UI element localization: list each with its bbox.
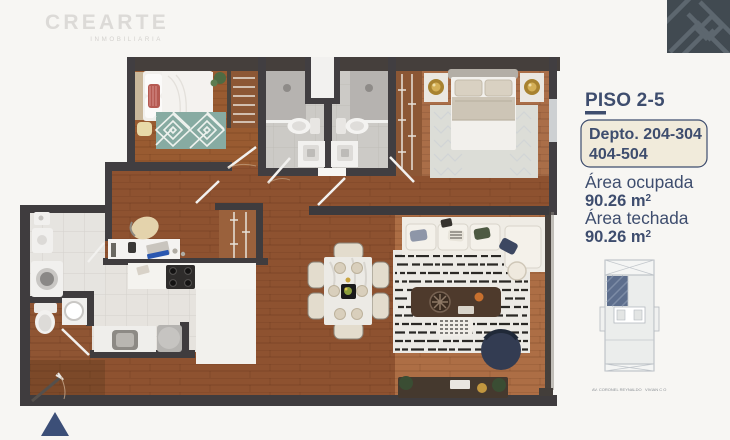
svg-text:Área techada: Área techada xyxy=(585,208,689,228)
svg-text:VIVIAN C O: VIVIAN C O xyxy=(645,387,666,392)
svg-text:Depto. 204-304: Depto. 204-304 xyxy=(589,126,702,143)
svg-text:PISO 2-5: PISO 2-5 xyxy=(585,90,665,111)
svg-text:90.26 m2: 90.26 m2 xyxy=(585,228,652,246)
svg-text:AV. CORONEL REYNALDO: AV. CORONEL REYNALDO xyxy=(592,387,642,392)
svg-text:CREARTE: CREARTE xyxy=(45,11,169,34)
svg-text:Área ocupada: Área ocupada xyxy=(585,172,694,192)
svg-text:INMOBILIARIA: INMOBILIARIA xyxy=(90,36,163,43)
svg-text:404-504: 404-504 xyxy=(589,146,648,163)
